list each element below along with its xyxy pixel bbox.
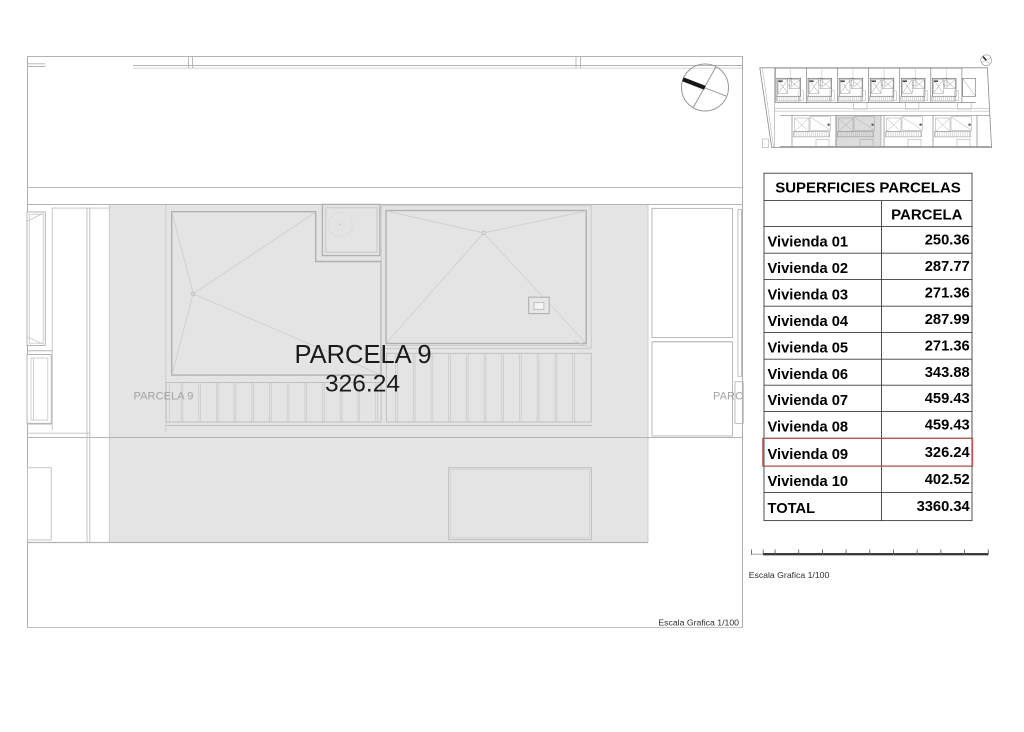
svg-text:343.88: 343.88 [925, 365, 970, 381]
svg-text:Escala Grafica 1/100: Escala Grafica 1/100 [658, 618, 739, 628]
svg-text:287.77: 287.77 [925, 259, 970, 275]
svg-text:PARCELA 9: PARCELA 9 [294, 341, 431, 369]
svg-text:Vivienda 09: Vivienda 09 [768, 447, 849, 463]
svg-text:Vivienda 04: Vivienda 04 [768, 314, 849, 330]
svg-text:Vivienda 05: Vivienda 05 [768, 341, 849, 357]
svg-text:Vivienda 03: Vivienda 03 [768, 288, 849, 304]
svg-text:271.36: 271.36 [925, 339, 970, 355]
svg-text:Vivienda 08: Vivienda 08 [768, 420, 849, 436]
svg-text:287.99: 287.99 [925, 312, 970, 328]
svg-text:402.52: 402.52 [925, 472, 970, 488]
svg-text:Vivienda 07: Vivienda 07 [768, 393, 849, 409]
svg-text:250.36: 250.36 [925, 233, 970, 249]
svg-text:Vivienda 02: Vivienda 02 [768, 261, 849, 277]
svg-text:459.43: 459.43 [925, 418, 970, 434]
svg-text:Vivienda 10: Vivienda 10 [768, 474, 849, 490]
svg-text:3360.34: 3360.34 [917, 499, 971, 515]
svg-text:Escala Grafica 1/100: Escala Grafica 1/100 [749, 570, 830, 580]
svg-text:Vivienda 01: Vivienda 01 [768, 235, 849, 251]
svg-text:271.36: 271.36 [925, 286, 970, 302]
svg-text:SUPERFICIES PARCELAS: SUPERFICIES PARCELAS [775, 179, 961, 196]
svg-text:PARCELA 9: PARCELA 9 [133, 390, 193, 402]
svg-text:Vivienda 06: Vivienda 06 [768, 367, 849, 383]
svg-text:TOTAL: TOTAL [768, 501, 816, 517]
svg-text:326.24: 326.24 [925, 445, 971, 461]
svg-text:PARCELA: PARCELA [891, 207, 963, 224]
svg-text:326.24: 326.24 [325, 370, 400, 397]
svg-text:459.43: 459.43 [925, 391, 970, 407]
